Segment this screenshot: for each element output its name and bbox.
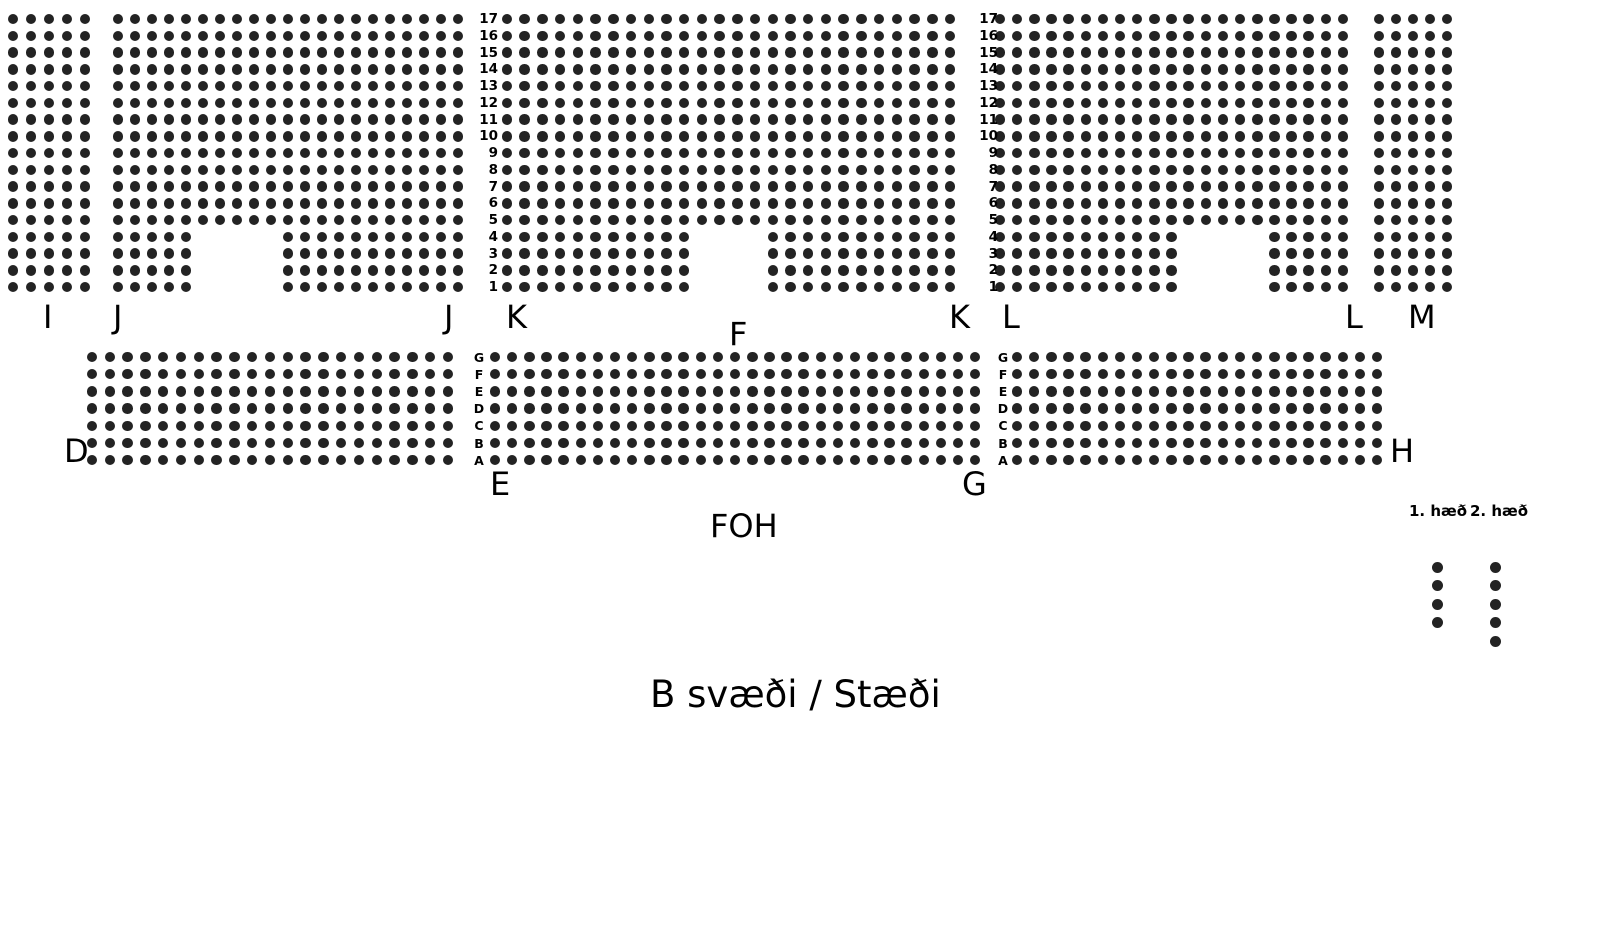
seat-dot (1115, 282, 1126, 293)
seat-dot (407, 438, 418, 449)
seat-dot (856, 282, 867, 293)
seat-dot (354, 421, 365, 432)
row-letter: C (993, 419, 1013, 432)
seat-dot (867, 403, 878, 414)
seat-dot (1235, 131, 1246, 142)
seat-dot (407, 386, 418, 397)
seat-dot (1338, 47, 1349, 58)
seat-dot (80, 215, 91, 226)
seat-dot (730, 438, 741, 449)
seat-dot (919, 438, 930, 449)
seat-dot (80, 232, 91, 243)
seat-dot (909, 31, 920, 42)
seat-dot (247, 352, 258, 363)
seat-dot (798, 455, 809, 466)
seat-dot (164, 47, 175, 58)
seat-dot (1029, 369, 1040, 380)
seat-dot (1425, 64, 1436, 75)
seat-dot (661, 64, 672, 75)
seat-dot (768, 64, 779, 75)
seat-dot (249, 131, 260, 142)
seat-dot (1012, 215, 1023, 226)
seat-dot (803, 114, 814, 125)
seat-dot (1115, 64, 1126, 75)
seat-dot (856, 114, 867, 125)
seat-dot (1029, 47, 1040, 58)
seat-dot (1081, 215, 1092, 226)
seat-dot (249, 148, 260, 159)
seat-dot (1374, 98, 1385, 109)
seat-dot (105, 403, 116, 414)
seat-dot (593, 421, 604, 432)
seat-dot (317, 165, 328, 176)
seat-dot (732, 131, 743, 142)
seat-dot (372, 369, 383, 380)
seat-dot (1046, 455, 1057, 466)
seat-dot (1098, 14, 1109, 25)
seat-dot (232, 181, 243, 192)
seat-dot (519, 64, 530, 75)
section-label-f: F (729, 318, 747, 350)
seat-dot (354, 386, 365, 397)
seat-dot (1029, 165, 1040, 176)
seat-dot (122, 352, 133, 363)
seat-dot (1063, 47, 1074, 58)
seat-dot (798, 369, 809, 380)
seat-dot (555, 198, 566, 209)
seat-dot (283, 198, 294, 209)
seat-dot (1235, 14, 1246, 25)
seat-dot (626, 47, 637, 58)
seat-dot (856, 148, 867, 159)
seat-dot (80, 114, 91, 125)
seat-dot (1235, 455, 1246, 466)
seat-dot (300, 47, 311, 58)
seat-dot (1012, 265, 1023, 276)
seat-dot (1098, 131, 1109, 142)
seat-dot (732, 198, 743, 209)
seat-dot (130, 198, 141, 209)
seat-dot (147, 98, 158, 109)
seat-dot (113, 165, 124, 176)
seat-dot (1338, 165, 1349, 176)
seat-dot (679, 248, 690, 259)
seat-dot (1098, 352, 1109, 363)
seat-dot (1132, 265, 1143, 276)
seat-dot (785, 198, 796, 209)
seat-dot (1081, 64, 1092, 75)
seat-dot (838, 64, 849, 75)
seat-dot (1391, 98, 1402, 109)
seat-dot (555, 215, 566, 226)
seat-dot (351, 47, 362, 58)
seat-dot (1269, 81, 1280, 92)
seat-dot (1200, 421, 1211, 432)
seat-dot (661, 131, 672, 142)
seat-dot (1166, 131, 1177, 142)
seat-dot (1200, 455, 1211, 466)
seat-dot (644, 282, 655, 293)
seat-dot (385, 282, 396, 293)
seat-dot (1303, 148, 1314, 159)
seat-dot (519, 181, 530, 192)
seat-dot (1132, 403, 1143, 414)
seat-dot (1012, 369, 1023, 380)
seat-dot (176, 455, 187, 466)
seat-dot (945, 248, 956, 259)
seat-dot (130, 47, 141, 58)
seat-dot (626, 14, 637, 25)
seat-dot (1063, 438, 1074, 449)
seat-dot (1029, 455, 1040, 466)
seat-dot (537, 31, 548, 42)
seat-dot (750, 47, 761, 58)
seat-dot (1166, 369, 1177, 380)
seat-dot (1355, 421, 1366, 432)
seat-dot (874, 265, 885, 276)
seat-dot (927, 131, 938, 142)
seat-dot (1286, 14, 1297, 25)
seat-dot (232, 14, 243, 25)
seat-dot (1355, 386, 1366, 397)
seat-dot (679, 98, 690, 109)
seat-dot (1081, 148, 1092, 159)
seat-dot (385, 165, 396, 176)
seat-dot (502, 181, 513, 192)
seat-dot (436, 198, 447, 209)
seat-dot (1374, 215, 1385, 226)
seat-dot (803, 14, 814, 25)
seat-dot (1286, 98, 1297, 109)
seat-dot (608, 47, 619, 58)
seat-dot (334, 232, 345, 243)
seat-dot (750, 98, 761, 109)
seat-dot (714, 131, 725, 142)
seat-dot (1218, 64, 1229, 75)
seat-dot (1355, 369, 1366, 380)
seat-dot (229, 455, 240, 466)
seat-dot (113, 265, 124, 276)
seat-dot (1442, 114, 1453, 125)
seat-dot (436, 114, 447, 125)
seat-dot (1063, 403, 1074, 414)
seat-dot (26, 64, 37, 75)
seat-dot (181, 232, 192, 243)
seat-dot (927, 248, 938, 259)
seat-dot (317, 215, 328, 226)
seat-dot (696, 455, 707, 466)
seat-dot (402, 198, 413, 209)
seat-dot (419, 98, 430, 109)
seat-dot (407, 352, 418, 363)
legend-seat-dot (1490, 617, 1501, 628)
seat-dot (502, 148, 513, 159)
seat-dot (266, 31, 277, 42)
seat-dot (785, 248, 796, 259)
seat-dot (1081, 14, 1092, 25)
seat-dot (919, 386, 930, 397)
seat-dot (1166, 31, 1177, 42)
seat-dot (1063, 215, 1074, 226)
seat-dot (232, 98, 243, 109)
seat-dot (1149, 148, 1160, 159)
seat-dot (750, 148, 761, 159)
seat-dot (892, 114, 903, 125)
seat-dot (232, 165, 243, 176)
seat-dot (147, 165, 158, 176)
row-number: 7 (968, 180, 998, 194)
seat-dot (130, 282, 141, 293)
seat-dot (1372, 421, 1383, 432)
seat-dot (1063, 131, 1074, 142)
seat-dot (644, 181, 655, 192)
seat-dot (211, 386, 222, 397)
seat-dot (524, 403, 535, 414)
seat-dot (113, 114, 124, 125)
seat-dot (407, 455, 418, 466)
row-number: 5 (468, 213, 498, 227)
seat-dot (1442, 47, 1453, 58)
seat-dot (1303, 352, 1314, 363)
seat-dot (1269, 438, 1280, 449)
seat-dot (229, 421, 240, 432)
seat-dot (1063, 265, 1074, 276)
seat-dot (626, 98, 637, 109)
seat-dot (936, 352, 947, 363)
seat-dot (176, 403, 187, 414)
seat-dot (644, 31, 655, 42)
seat-dot (697, 98, 708, 109)
seat-dot (334, 198, 345, 209)
row-letter: C (469, 419, 489, 432)
seat-dot (1391, 215, 1402, 226)
seat-dot (856, 198, 867, 209)
seat-dot (300, 81, 311, 92)
seat-dot (608, 64, 619, 75)
seat-dot (927, 215, 938, 226)
seat-dot (1218, 47, 1229, 58)
seat-dot (1166, 232, 1177, 243)
seat-dot (1355, 455, 1366, 466)
seat-dot (1303, 265, 1314, 276)
seat-dot (821, 64, 832, 75)
seat-dot (215, 148, 226, 159)
seat-dot (714, 14, 725, 25)
seat-dot (696, 352, 707, 363)
seat-dot (1166, 148, 1177, 159)
seat-dot (283, 215, 294, 226)
seat-dot (714, 98, 725, 109)
seat-dot (626, 165, 637, 176)
seat-dot (626, 114, 637, 125)
seat-dot (62, 265, 73, 276)
seat-dot (62, 14, 73, 25)
seat-dot (661, 438, 672, 449)
seat-dot (8, 114, 19, 125)
seat-dot (927, 47, 938, 58)
seat-dot (368, 81, 379, 92)
seat-dot (730, 386, 741, 397)
seat-dot (1046, 31, 1057, 42)
seat-dot (892, 248, 903, 259)
seat-dot (419, 232, 430, 243)
seat-dot (8, 148, 19, 159)
seat-dot (573, 248, 584, 259)
seat-dot (1442, 232, 1453, 243)
seat-dot (300, 438, 311, 449)
seat-dot (1218, 131, 1229, 142)
seat-dot (781, 369, 792, 380)
seat-dot (44, 14, 55, 25)
seat-dot (558, 455, 569, 466)
seat-dot (211, 403, 222, 414)
seat-dot (838, 47, 849, 58)
seat-dot (768, 114, 779, 125)
seat-dot (537, 131, 548, 142)
seat-dot (1391, 31, 1402, 42)
seat-dot (1149, 31, 1160, 42)
seat-dot (122, 403, 133, 414)
seat-dot (714, 181, 725, 192)
seat-dot (1029, 215, 1040, 226)
seat-dot (1200, 386, 1211, 397)
seat-dot (590, 198, 601, 209)
seat-dot (1063, 148, 1074, 159)
seat-dot (1029, 352, 1040, 363)
seat-dot (147, 198, 158, 209)
seat-dot (372, 421, 383, 432)
seat-dot (176, 438, 187, 449)
row-number: 17 (968, 12, 998, 26)
seat-dot (1374, 31, 1385, 42)
seat-dot (283, 248, 294, 259)
seat-dot (1391, 181, 1402, 192)
seat-dot (1149, 81, 1160, 92)
seat-dot (1235, 64, 1246, 75)
seat-dot (610, 352, 621, 363)
seat-dot (524, 386, 535, 397)
seat-dot (1321, 98, 1332, 109)
seat-dot (1408, 14, 1419, 25)
seat-dot (80, 282, 91, 293)
seat-dot (300, 352, 311, 363)
seat-dot (1063, 369, 1074, 380)
seat-dot (927, 181, 938, 192)
seat-dot (679, 81, 690, 92)
seat-dot (44, 248, 55, 259)
seat-dot (113, 215, 124, 226)
seat-dot (590, 282, 601, 293)
seat-dot (679, 148, 690, 159)
row-letter: G (993, 351, 1013, 364)
seat-dot (44, 64, 55, 75)
seat-dot (1149, 386, 1160, 397)
seat-dot (265, 386, 276, 397)
seat-dot (1063, 14, 1074, 25)
seat-dot (661, 165, 672, 176)
seat-dot (1442, 81, 1453, 92)
seat-dot (768, 248, 779, 259)
seat-dot (590, 131, 601, 142)
seat-dot (537, 81, 548, 92)
seat-dot (351, 98, 362, 109)
seat-dot (1338, 232, 1349, 243)
seat-dot (300, 148, 311, 159)
seat-dot (1115, 369, 1126, 380)
seat-dot (626, 282, 637, 293)
seat-dot (1149, 181, 1160, 192)
row-letter: D (993, 402, 1013, 415)
seat-dot (1012, 198, 1023, 209)
seat-dot (1321, 148, 1332, 159)
seat-dot (283, 369, 294, 380)
legend-seat-dot (1432, 599, 1443, 610)
seat-dot (936, 386, 947, 397)
seat-dot (850, 386, 861, 397)
seat-dot (661, 198, 672, 209)
seat-dot (555, 14, 566, 25)
seat-dot (1252, 64, 1263, 75)
seat-dot (892, 31, 903, 42)
seat-dot (300, 14, 311, 25)
row-number: 9 (968, 146, 998, 160)
seat-dot (490, 352, 501, 363)
seat-dot (211, 455, 222, 466)
seat-dot (1303, 14, 1314, 25)
seat-dot (317, 181, 328, 192)
seat-dot (1115, 148, 1126, 159)
seat-dot (300, 386, 311, 397)
seat-dot (1063, 64, 1074, 75)
seat-dot (1442, 248, 1453, 259)
seat-dot (768, 282, 779, 293)
seat-dot (1320, 386, 1331, 397)
seat-dot (407, 421, 418, 432)
seat-dot (1321, 131, 1332, 142)
seat-dot (1235, 114, 1246, 125)
seat-dot (453, 114, 464, 125)
seat-dot (1063, 455, 1074, 466)
seat-dot (1252, 47, 1263, 58)
seat-dot (1063, 81, 1074, 92)
seat-dot (874, 47, 885, 58)
seat-dot (892, 98, 903, 109)
seat-dot (318, 352, 329, 363)
seat-dot (453, 215, 464, 226)
seat-dot (215, 47, 226, 58)
seat-dot (1201, 31, 1212, 42)
seat-dot (785, 282, 796, 293)
seat-dot (953, 403, 964, 414)
seat-dot (856, 181, 867, 192)
seat-dot (26, 198, 37, 209)
row-letter: A (993, 454, 1013, 467)
seat-dot (419, 131, 430, 142)
seat-dot (502, 282, 513, 293)
seat-dot (502, 64, 513, 75)
seat-dot (874, 14, 885, 25)
seat-dot (229, 369, 240, 380)
seat-dot (1391, 265, 1402, 276)
seat-dot (1425, 114, 1436, 125)
seat-dot (785, 98, 796, 109)
seat-dot (1269, 215, 1280, 226)
seat-dot (1183, 64, 1194, 75)
row-number: 3 (968, 247, 998, 261)
seat-dot (1029, 181, 1040, 192)
seat-dot (1425, 248, 1436, 259)
seat-dot (1046, 114, 1057, 125)
